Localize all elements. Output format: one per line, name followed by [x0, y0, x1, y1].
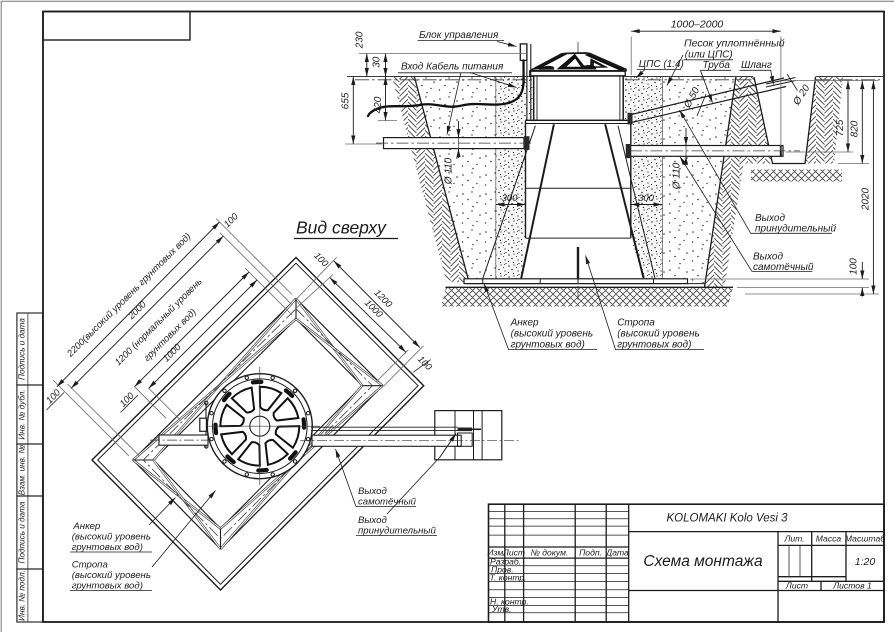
svg-text:Масштаб: Масштаб — [845, 534, 886, 544]
svg-text:(высокий уровень: (высокий уровень — [511, 329, 594, 340]
svg-text:Стропа: Стропа — [72, 560, 108, 571]
svg-text:Анкер: Анкер — [510, 318, 539, 329]
svg-text:(высокий уровень: (высокий уровень — [72, 532, 151, 543]
svg-text:Блок управления: Блок управления — [419, 30, 499, 41]
svg-text:Подп.: Подп. — [579, 548, 602, 558]
svg-text:Ø 110: Ø 110 — [672, 162, 683, 190]
svg-text:принудительный: принудительный — [358, 526, 436, 537]
svg-text:(высокий уровень: (высокий уровень — [72, 570, 151, 581]
svg-text:ЦПС (1:4): ЦПС (1:4) — [639, 59, 684, 70]
svg-text:Стропа: Стропа — [617, 318, 655, 329]
svg-text:KOLOMAKI Kolo Vesi 3: KOLOMAKI Kolo Vesi 3 — [666, 513, 788, 525]
svg-text:2020: 2020 — [861, 187, 872, 211]
svg-text:Выход: Выход — [358, 486, 387, 497]
svg-text:820: 820 — [850, 120, 861, 137]
svg-text:230: 230 — [355, 31, 366, 49]
svg-text:Листов 1: Листов 1 — [832, 581, 872, 591]
svg-text:Подпись и дата: Подпись и дата — [18, 501, 27, 563]
svg-text:Песок уплотнённый: Песок уплотнённый — [684, 38, 785, 50]
svg-text:Ø 110: Ø 110 — [444, 157, 455, 185]
svg-text:Вид сверху: Вид сверху — [296, 218, 387, 238]
svg-text:1:20: 1:20 — [855, 556, 876, 568]
svg-text:1000–2000: 1000–2000 — [671, 19, 724, 31]
svg-text:Подпись и дата: Подпись и дата — [18, 318, 27, 380]
svg-text:420: 420 — [373, 96, 384, 113]
svg-text:Утв.: Утв. — [491, 604, 512, 614]
svg-text:Выход: Выход — [755, 213, 785, 224]
svg-text:Т. контр.: Т. контр. — [490, 572, 527, 582]
svg-text:Схема монтажа: Схема монтажа — [643, 553, 763, 570]
svg-text:Инв. № подл.: Инв. № подл. — [18, 570, 27, 621]
svg-text:Выход: Выход — [753, 252, 783, 263]
svg-text:655: 655 — [341, 92, 352, 109]
svg-text:грунтовых вод): грунтовых вод) — [72, 542, 143, 553]
svg-text:Вход Кабель питания: Вход Кабель питания — [401, 61, 504, 73]
svg-text:100: 100 — [849, 258, 860, 275]
svg-text:самотёчный: самотёчный — [358, 497, 417, 508]
svg-text:(высокий уровень: (высокий уровень — [617, 329, 700, 340]
svg-text:725: 725 — [835, 119, 846, 136]
svg-text:Лит.: Лит. — [783, 534, 804, 544]
svg-text:принудительный: принудительный — [755, 224, 837, 235]
svg-text:30: 30 — [372, 56, 383, 68]
svg-text:300: 300 — [638, 193, 655, 204]
svg-text:300: 300 — [502, 193, 519, 204]
svg-text:Анкер: Анкер — [72, 521, 101, 532]
svg-text:Взам. инв. №: Взам. инв. № — [18, 445, 27, 496]
svg-text:Дата: Дата — [605, 548, 629, 558]
svg-text:грунтовых вод): грунтовых вод) — [511, 340, 585, 351]
svg-text:Выход: Выход — [358, 515, 387, 526]
svg-text:Лист: Лист — [785, 581, 808, 591]
svg-text:(или ЦПС): (или ЦПС) — [685, 50, 733, 61]
svg-text:Масса: Масса — [816, 534, 842, 544]
svg-text:грунтовых вод): грунтовых вод) — [617, 340, 691, 351]
svg-text:№ докум.: № докум. — [531, 548, 569, 558]
svg-text:Инв. № дубл.: Инв. № дубл. — [18, 389, 27, 439]
svg-text:грунтовых вод): грунтовых вод) — [72, 581, 143, 592]
svg-text:Шланг: Шланг — [741, 60, 772, 71]
svg-text:Труба: Труба — [703, 59, 731, 71]
